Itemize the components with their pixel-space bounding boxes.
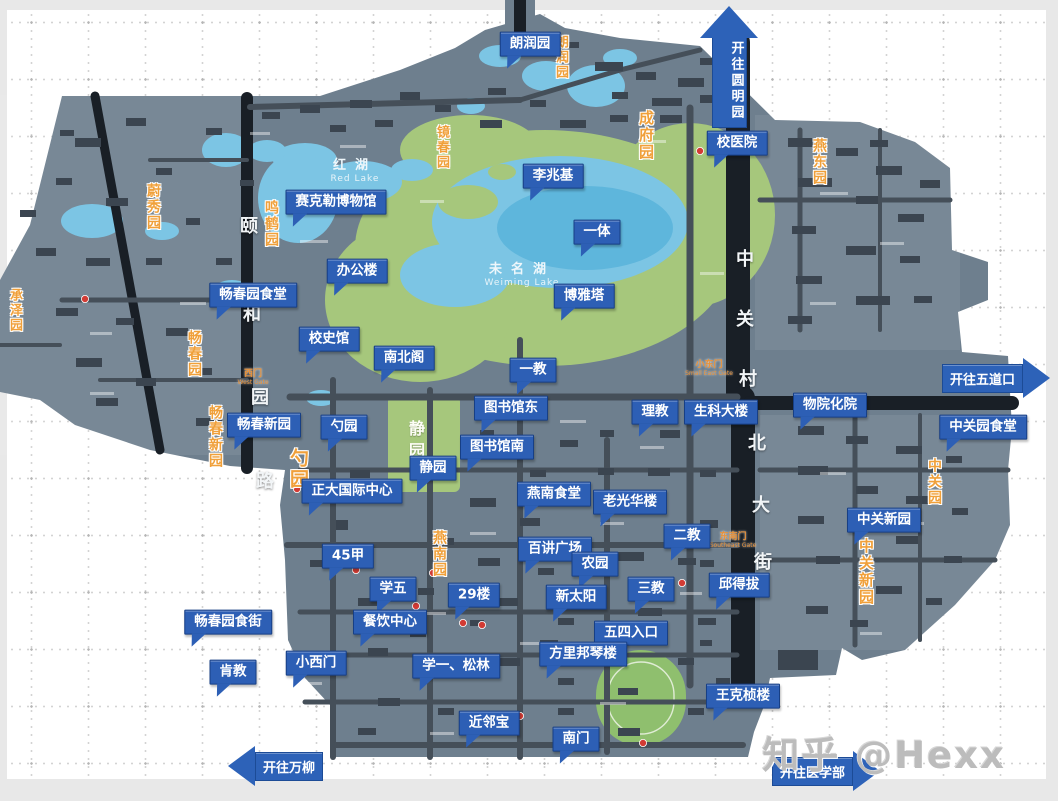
map-callout: 方里邦琴楼 xyxy=(539,642,627,667)
water-label: 红湖Red Lake xyxy=(331,158,380,184)
road-name-char: 路 xyxy=(256,473,274,491)
map-callout: 近邻宝 xyxy=(459,711,520,736)
map-callout: 燕南食堂 xyxy=(517,482,591,507)
map-callout: 校史馆 xyxy=(299,327,360,352)
map-callout: 邱得拔 xyxy=(709,573,770,598)
map-callout: 南北阁 xyxy=(374,346,435,371)
map-callout: 畅春园食街 xyxy=(184,610,272,635)
water-label-zh: 红湖 xyxy=(331,158,380,174)
map-callout: 静园 xyxy=(410,456,457,481)
map-callout: 李兆基 xyxy=(523,164,584,189)
gate-label-en: West Gate xyxy=(237,380,268,387)
gate-label: 小东门Small East Gate xyxy=(685,361,733,377)
water-label-zh: 未名湖 xyxy=(485,262,560,278)
garden-name-label: 中关新园 xyxy=(858,538,873,606)
gate-label: 东南门Southeast Gate xyxy=(710,533,757,549)
garden-name-label: 镜春园 xyxy=(435,125,448,170)
garden-name-label: 畅春新园 xyxy=(208,405,222,469)
map-callout: 餐饮中心 xyxy=(353,610,427,635)
garden-name-label: 畅春园 xyxy=(187,330,201,378)
map-callout: 办公楼 xyxy=(327,259,388,284)
garden-name-label: 承泽园 xyxy=(8,288,21,333)
gate-label-zh: 东南门 xyxy=(719,532,746,542)
map-callout: 中关园食堂 xyxy=(939,415,1027,440)
map-callout: 图书馆东 xyxy=(474,396,548,421)
screenshot-root: { "watermark": { "text": "知乎 @Hexx" }, "… xyxy=(0,0,1058,801)
annotation-overlay: 朗润园校医院李兆基赛克勒博物馆一体办公楼畅春园食堂博雅塔校史馆南北阁一教图书馆东… xyxy=(0,0,1058,801)
gate-label-en: Small East Gate xyxy=(685,371,733,378)
road-name-char: 村 xyxy=(739,371,757,389)
road-name-char: 关 xyxy=(736,311,754,329)
gate-label-en: Southeast Gate xyxy=(710,543,757,550)
direction-arrow-label: 开往五道口 xyxy=(942,364,1023,393)
map-callout: 新太阳 xyxy=(546,585,607,610)
direction-arrow-label: 开往圆明园 xyxy=(712,38,747,128)
water-label-en: Red Lake xyxy=(331,174,380,185)
garden-name-label: 中关园 xyxy=(927,458,941,506)
map-callout: 物院化院 xyxy=(793,393,867,418)
arrow-head-icon xyxy=(1023,358,1050,398)
road-name-char: 街 xyxy=(754,554,772,572)
water-label-en: Weiming Lake xyxy=(485,278,560,289)
map-callout: 朗润园 xyxy=(500,32,561,57)
map-callout: 正大国际中心 xyxy=(302,479,403,504)
gate-label-zh: 小东门 xyxy=(695,360,722,370)
map-callout: 中关新园 xyxy=(847,508,921,533)
garden-name-label: 成府园 xyxy=(638,110,653,161)
arrow-head-icon xyxy=(700,6,758,38)
map-callout: 学一、松林 xyxy=(412,654,500,679)
map-callout: 二教 xyxy=(664,524,711,549)
map-callout: 农园 xyxy=(572,552,619,577)
water-label: 未名湖Weiming Lake xyxy=(485,262,560,288)
garden-name-label: 燕南园 xyxy=(432,530,446,578)
map-callout: 图书馆南 xyxy=(460,435,534,460)
map-callout: 45甲 xyxy=(322,544,374,569)
map-callout: 29楼 xyxy=(448,583,500,608)
map-callout: 理教 xyxy=(632,400,679,425)
road-name-char: 大 xyxy=(752,497,770,515)
map-callout: 校医院 xyxy=(707,131,768,156)
road-name-char: 颐 xyxy=(240,218,258,236)
road-name-char: 和 xyxy=(243,306,261,324)
map-callout: 畅春园食堂 xyxy=(209,283,297,308)
map-callout: 勺园 xyxy=(321,415,368,440)
direction-arrow-up: 开往圆明园 xyxy=(699,6,759,128)
map-callout: 一体 xyxy=(574,220,621,245)
road-name-char: 园 xyxy=(251,389,269,407)
map-callout: 畅春新园 xyxy=(227,413,301,438)
garden-name-label: 燕东园 xyxy=(812,138,826,186)
map-callout: 学五 xyxy=(370,577,417,602)
direction-arrow-right: 开往五道口 xyxy=(942,358,1050,398)
map-callout: 博雅塔 xyxy=(554,284,615,309)
map-callout: 赛克勒博物馆 xyxy=(286,190,387,215)
map-callout: 王克桢楼 xyxy=(706,684,780,709)
watermark: 知乎 @Hexx xyxy=(762,725,1006,779)
road-name-char: 中 xyxy=(736,251,754,269)
gate-label: 西门West Gate xyxy=(237,370,268,386)
map-callout: 三教 xyxy=(628,577,675,602)
direction-arrow-label: 开往万柳 xyxy=(255,752,323,781)
garden-name-label: 蔚秀园 xyxy=(146,183,160,231)
map-callout: 老光华楼 xyxy=(593,490,667,515)
map-callout: 生科大楼 xyxy=(684,400,758,425)
map-callout: 南门 xyxy=(553,727,600,752)
map-callout: 一教 xyxy=(510,358,557,383)
gate-label-zh: 西门 xyxy=(244,369,262,379)
direction-arrow-left: 开往万柳 xyxy=(228,746,323,786)
garden-name-label: 鸣鹤园 xyxy=(264,200,278,248)
map-callout: 肯教 xyxy=(210,660,257,685)
arrow-head-icon xyxy=(228,746,255,786)
road-name-char: 北 xyxy=(748,435,766,453)
map-callout: 小西门 xyxy=(286,651,347,676)
